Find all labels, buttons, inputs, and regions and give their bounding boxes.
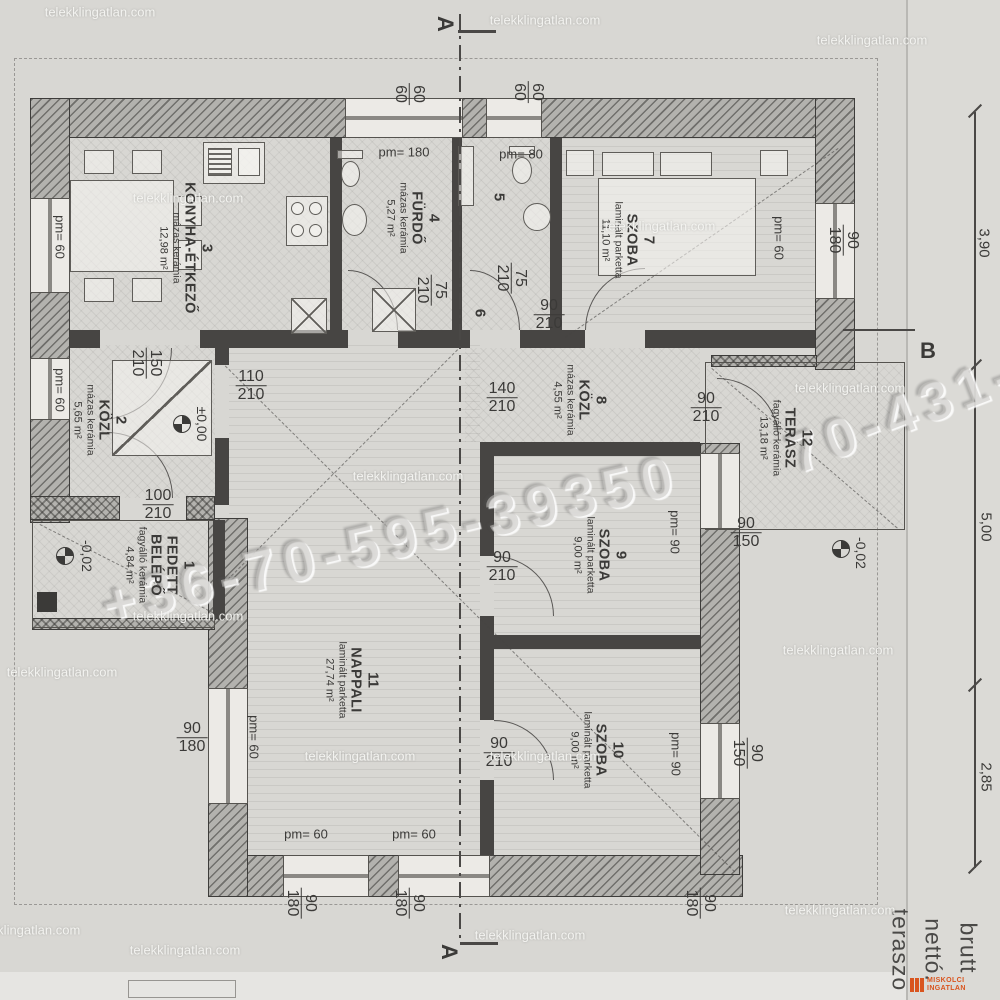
- dim-pair: 75210: [493, 263, 529, 294]
- porch-column: [37, 592, 57, 612]
- room-label-line: mázas kerámia: [84, 384, 96, 455]
- toilet-tank: [337, 150, 363, 159]
- dim-bottom: 60: [391, 83, 409, 105]
- dim-bottom: 210: [487, 567, 518, 585]
- watermark-site: telekklingatlan.com: [305, 749, 416, 764]
- parapet-label: pm= 90: [669, 732, 684, 776]
- wall-porch-top-left: [30, 496, 120, 520]
- corner-word-brutto: brutt: [955, 922, 982, 973]
- room-label-8: 8KÖZLmázas kerámia4,55 m²: [551, 364, 608, 435]
- wc-sink: [523, 203, 551, 231]
- dim-pair: 100210: [143, 487, 174, 523]
- floorplan-scan: A A B MISKOLCI INGATLAN brutt nettó. ter…: [0, 0, 1000, 1000]
- wall-kitchen-bath: [330, 138, 342, 330]
- pillow: [660, 152, 712, 176]
- wall-mid-1: [70, 330, 100, 348]
- watermark-site: telekklingatlan.com: [490, 13, 601, 28]
- watermark-site: telekklingatlan.com: [133, 609, 244, 624]
- room-label-line: 7: [640, 201, 657, 278]
- room-label-2: 2KÖZLmázas kerámia5,65 m²: [71, 384, 128, 455]
- room-label-line: 5: [490, 193, 507, 201]
- dim-bottom: 210: [493, 263, 511, 294]
- corner-word-netto: nettó.: [920, 918, 947, 982]
- dim-top: 90: [493, 549, 511, 566]
- room-label-line: mázas kerámia: [564, 364, 576, 435]
- burner: [309, 202, 322, 215]
- room-label-line: NAPPALI: [348, 641, 364, 718]
- room-label-line: KÖZL: [576, 364, 592, 435]
- dim-bottom: 180: [682, 888, 700, 919]
- room-label-6: 6: [471, 309, 488, 317]
- room-label-line: laminált parketta: [336, 641, 348, 718]
- section-b-bar: [843, 329, 915, 331]
- room-label-line: SZOBA: [596, 516, 612, 593]
- dim-top: 90: [737, 515, 755, 532]
- dim-top: 90: [183, 720, 201, 737]
- chain-dimension: 2,85: [978, 762, 995, 791]
- dim-pair: 75210: [413, 275, 449, 306]
- room-label-line: 27,74 m²: [323, 641, 335, 718]
- room-label-line: mázas kerámia: [397, 182, 409, 253]
- burner: [291, 224, 304, 237]
- burner: [291, 202, 304, 215]
- dim-top: 150: [147, 350, 164, 377]
- toilet-bowl: [341, 161, 360, 187]
- logo-line2: INGATLAN: [927, 985, 966, 993]
- dimension-chain-line: [974, 112, 976, 868]
- parapet-label: pm= 60: [284, 827, 328, 842]
- level-symbol: [173, 415, 191, 433]
- dim-pair: 90180: [391, 888, 427, 919]
- dim-bottom: 180: [177, 738, 208, 756]
- section-a-top-bar: [458, 30, 496, 33]
- section-b-label: B: [920, 338, 936, 364]
- room-label-line: laminált parketta: [584, 516, 596, 593]
- dim-bottom: 210: [413, 275, 431, 306]
- sink-basin-right: [238, 148, 260, 176]
- watermark-site: telekklingatlan.com: [783, 643, 894, 658]
- dim-bottom: 180: [283, 888, 301, 919]
- dim-bottom: 210: [534, 315, 565, 333]
- room-label-12: 12TERASZfagyálló kerámia13,18 m²: [757, 400, 814, 476]
- dim-pair: 90180: [177, 720, 208, 756]
- room-label-line: 1: [180, 527, 197, 603]
- parapet-label: pm= 60: [53, 215, 68, 259]
- wall-rooms-left-3: [480, 780, 494, 856]
- dim-bottom: 210: [128, 348, 146, 379]
- room-label-line: FEDETT: [164, 527, 180, 603]
- dim-top: 75: [432, 281, 449, 299]
- room-label-1: 1FEDETTBELÉPŐfagyálló kerámia4,84 m²: [123, 527, 196, 603]
- dim-bottom: 150: [729, 738, 747, 769]
- dim-top: 90: [844, 231, 861, 249]
- dim-pair: 90180: [682, 888, 718, 919]
- page-edge-strip: [906, 0, 1000, 1000]
- chair: [84, 278, 114, 302]
- room-label-line: KÖZL: [96, 384, 112, 455]
- nightstand: [760, 150, 788, 176]
- room-label-line: 11,10 m²: [599, 201, 611, 278]
- room-label-7: 7SZOBAlaminált parketta11,10 m²: [599, 201, 656, 278]
- room-label-line: fagyálló kerámia: [136, 527, 148, 603]
- watermark-site: telekklingatlan.com: [353, 469, 464, 484]
- dim-bottom: 210: [691, 408, 722, 426]
- dim-bottom: 210: [143, 505, 174, 523]
- dim-pair: 90210: [534, 297, 565, 333]
- dim-top: 90: [748, 744, 765, 762]
- watermark-site: telekklingatlan.com: [795, 381, 906, 396]
- parapet-label: pm= 180: [379, 145, 430, 160]
- parapet-label: pm= 90: [668, 510, 683, 554]
- dim-bottom: 150: [731, 533, 762, 551]
- dim-bottom: 180: [391, 888, 409, 919]
- chain-dimension: 3,90: [976, 228, 993, 257]
- room-label-line: 5,27 m²: [384, 182, 396, 253]
- room-label-line: 9,00 m²: [571, 516, 583, 593]
- dim-top: 90: [410, 894, 427, 912]
- dim-bottom: 180: [825, 225, 843, 256]
- dim-top: 90: [697, 390, 715, 407]
- room-label-line: 4: [425, 182, 442, 253]
- dim-pair: 140210: [487, 380, 518, 416]
- wall-room9-room10: [480, 635, 700, 649]
- watermark-site: telekklingatlan.com: [7, 665, 118, 680]
- room-label-line: 9: [612, 516, 629, 593]
- level-symbol: [56, 547, 74, 565]
- dim-top: 90: [540, 297, 558, 314]
- dim-top: 75: [512, 269, 529, 287]
- level-symbol: [832, 540, 850, 558]
- room-label-line: 4,84 m²: [123, 527, 135, 603]
- watermark-site: telekklingatlan.com: [817, 33, 928, 48]
- room-label-line: SZOBA: [624, 201, 640, 278]
- room-label-line: 13,18 m²: [757, 400, 769, 476]
- bottom-strip-box: [128, 980, 236, 998]
- room-label-line: 2: [112, 384, 129, 455]
- room-label-line: 12: [798, 400, 815, 476]
- dim-pair: 6060: [391, 83, 427, 105]
- dim-top: 110: [238, 368, 264, 385]
- chain-dimension: 5,00: [978, 512, 995, 541]
- wall-mid-5: [645, 330, 815, 348]
- dim-pair: 90180: [825, 225, 861, 256]
- room-label-line: 8: [592, 364, 609, 435]
- nightstand: [566, 150, 594, 176]
- section-a-bottom-label: A: [436, 944, 462, 960]
- dim-bottom: 210: [487, 398, 518, 416]
- room-label-line: 10: [609, 711, 626, 788]
- room-label-9: 9SZOBAlaminált parketta9,00 m²: [571, 516, 628, 593]
- parapet-label: pm= 60: [247, 715, 262, 759]
- wall-left: [30, 98, 70, 523]
- dim-bottom: 210: [236, 386, 267, 404]
- window-wc-top: [486, 98, 542, 138]
- wall-hall2-right-2: [215, 438, 229, 505]
- room-label-line: 5,65 m²: [71, 384, 83, 455]
- wall-porch-top-right: [186, 496, 215, 520]
- burner: [309, 224, 322, 237]
- room-label-line: 4,55 m²: [551, 364, 563, 435]
- dim-top: 140: [489, 380, 516, 397]
- watermark-site: telekklingatlan.com: [130, 943, 241, 958]
- watermark-site: telekklingatlan.com: [605, 219, 716, 234]
- dim-pair: 90210: [487, 549, 518, 585]
- section-a-top-label: A: [432, 16, 458, 32]
- level-label: -0,02: [853, 537, 869, 569]
- watermark-site: telekklingatlan.com: [475, 928, 586, 943]
- dim-bottom: 60: [510, 81, 528, 103]
- level-label: -0,02: [79, 540, 95, 572]
- pillow: [602, 152, 654, 176]
- parapet-label: pm= 60: [53, 368, 68, 412]
- parapet-label: pm= 60: [772, 216, 787, 260]
- room-label-line: laminált parketta: [612, 201, 624, 278]
- level-label: ±0,00: [194, 407, 210, 442]
- sink-basin-left: [208, 148, 232, 176]
- room-label-4: 4FÜRDŐmázas kerámia5,27 m²: [384, 182, 441, 253]
- room-label-line: 6: [471, 309, 488, 317]
- dim-pair: 110210: [236, 368, 267, 404]
- dim-top: 60: [410, 85, 427, 103]
- parapet-label: pm= 80: [499, 147, 543, 162]
- room-label-line: TERASZ: [782, 400, 798, 476]
- shower: [372, 288, 416, 332]
- dim-pair: 90210: [691, 390, 722, 426]
- dim-pair: 150210: [128, 348, 164, 379]
- dim-top: 60: [529, 83, 546, 101]
- watermark-site: telekklingatlan.com: [0, 923, 80, 938]
- dim-pair: 90150: [729, 738, 765, 769]
- washing-machine: [291, 298, 327, 334]
- dim-top: 90: [701, 894, 718, 912]
- window-livingroom-left: [208, 688, 248, 804]
- dim-pair: 90150: [731, 515, 762, 551]
- parapet-label: pm= 60: [392, 827, 436, 842]
- room-label-line: 11: [364, 641, 381, 718]
- bath-sink: [342, 204, 367, 236]
- room-label-line: fagyálló kerámia: [770, 400, 782, 476]
- room-label-line: FÜRDŐ: [409, 182, 425, 253]
- room-label-line: BELÉPŐ: [147, 527, 163, 603]
- dim-top: 90: [302, 894, 319, 912]
- dim-top: 100: [145, 487, 172, 504]
- watermark-site: telekklingatlan.com: [490, 749, 601, 764]
- watermark-site: telekklingatlan.com: [45, 5, 156, 20]
- chair: [84, 150, 114, 174]
- chair: [132, 150, 162, 174]
- room-label-11: 11NAPPALIlaminált parketta27,74 m²: [323, 641, 380, 718]
- corner-word-terasz: teraszo: [887, 909, 914, 991]
- watermark-site: telekklingatlan.com: [785, 903, 896, 918]
- room-label-5: 5: [490, 193, 507, 201]
- dim-pair: 6060: [510, 81, 546, 103]
- watermark-site: telekklingatlan.com: [133, 191, 244, 206]
- dim-pair: 90180: [283, 888, 319, 919]
